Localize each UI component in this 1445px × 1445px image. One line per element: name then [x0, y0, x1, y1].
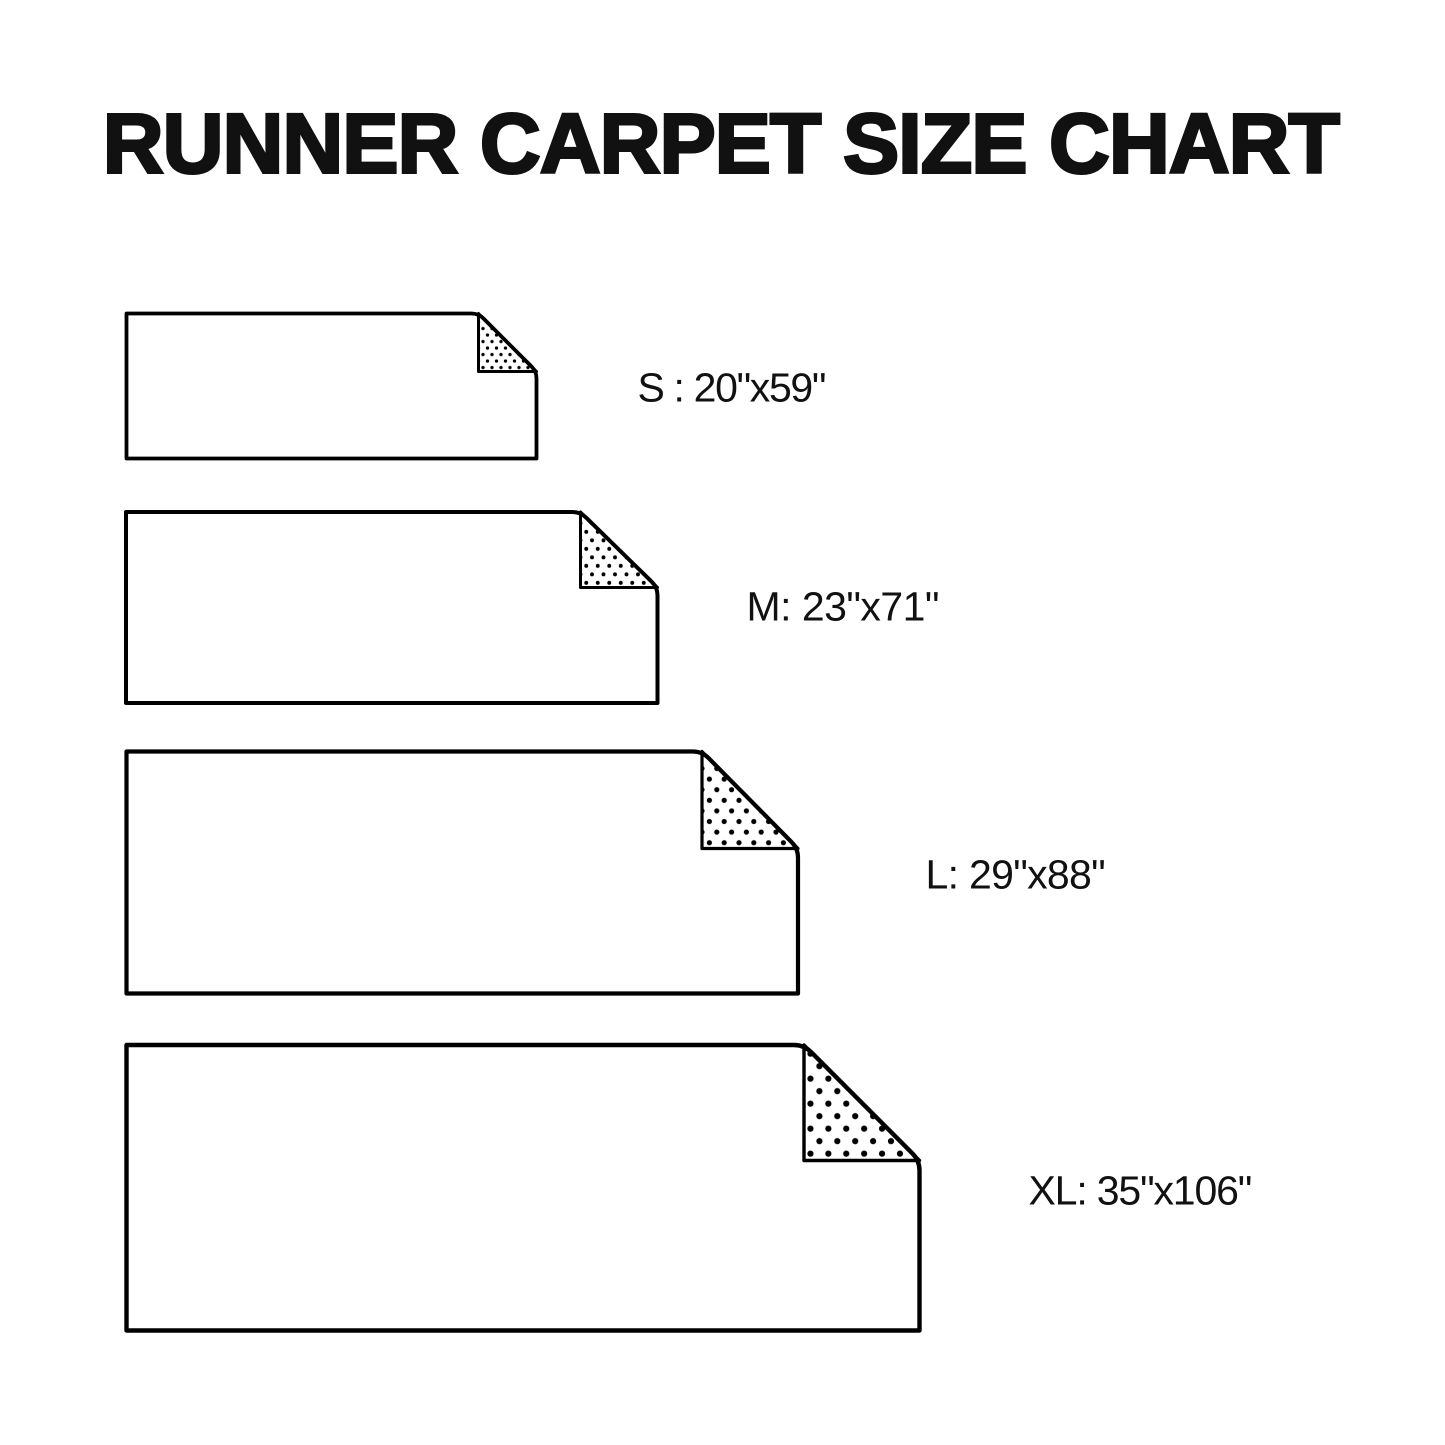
svg-text:S : 20"x59": S : 20"x59"	[638, 365, 826, 411]
svg-text:XL: 35"x106": XL: 35"x106"	[1029, 1168, 1252, 1214]
svg-text:M: 23"x71": M: 23"x71"	[747, 584, 939, 630]
svg-text:L: 29"x88": L: 29"x88"	[926, 852, 1106, 898]
svg-text:RUNNER CARPET SIZE CHART: RUNNER CARPET SIZE CHART	[103, 97, 1340, 191]
